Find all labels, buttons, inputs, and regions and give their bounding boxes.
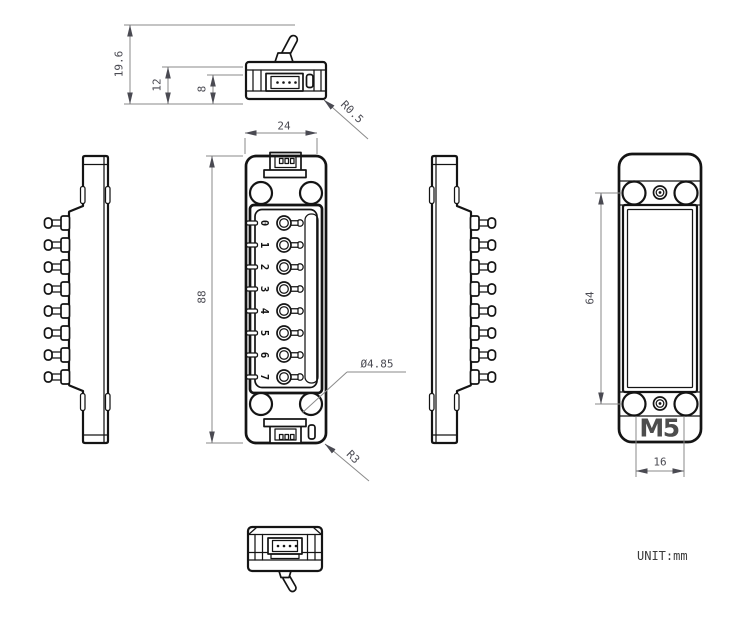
dim-label-24: 24 (277, 120, 291, 133)
tick-mark (247, 265, 258, 269)
dim-label-88: 88 (196, 290, 209, 303)
tick-mark (247, 375, 258, 379)
unit-note: UNIT:mm (637, 549, 688, 563)
screw-hole (250, 182, 272, 204)
tick-mark (247, 287, 258, 291)
dim-label-8: 8 (196, 86, 209, 93)
leader-corner-radius-main: R3 (325, 444, 369, 481)
dim-length: 88 (196, 156, 244, 443)
bottom-grove-connector (264, 419, 306, 443)
toggle-levers (45, 216, 70, 384)
dim-upper-body-height: 12 (151, 67, 244, 104)
screw-hole (675, 182, 698, 205)
connector-flange (264, 170, 306, 178)
dim-label-diameter: Ø4.85 (360, 358, 393, 371)
center-hole (654, 397, 667, 410)
toggle-levers (471, 216, 496, 384)
edge-notch (106, 394, 111, 411)
m5-logo: M5 (639, 414, 678, 443)
edge-notch (81, 394, 86, 411)
edge-notch (430, 187, 435, 204)
switch-number: 4 (258, 308, 270, 314)
screw-hole (623, 182, 646, 205)
screw-hole (300, 182, 322, 204)
edge-notch (455, 394, 460, 411)
panel-channel (305, 214, 318, 383)
technical-drawing-page: 19.6 12 8 R0.5 24 (0, 0, 750, 624)
case-outline (432, 156, 471, 443)
tick-mark (247, 353, 258, 357)
dim-label-r3: R3 (344, 448, 363, 467)
switch-number: 7 (258, 374, 270, 380)
technical-drawing-canvas: 19.6 12 8 R0.5 24 (0, 0, 750, 624)
back-view: M5 (619, 154, 701, 443)
edge-notch (106, 187, 111, 204)
tick-mark (247, 221, 258, 225)
edge-notch (455, 187, 460, 204)
top-view (246, 34, 326, 99)
leader-corner-radius-top: R0.5 (324, 98, 368, 139)
dim-label-12: 12 (151, 78, 164, 91)
switch-number: 6 (258, 352, 270, 358)
dim-label-r0-5: R0.5 (338, 98, 366, 126)
dim-base-height: 8 (196, 75, 244, 104)
dim-label-64: 64 (584, 291, 597, 305)
back-panel (623, 205, 697, 392)
edge-notch (430, 394, 435, 411)
dim-hole-pitch-vertical: 64 (584, 193, 622, 404)
toggle-lever (275, 34, 299, 62)
case-outline (69, 156, 108, 443)
edge-notch (81, 187, 86, 204)
switch-number: 3 (258, 286, 270, 292)
dim-width: 24 (245, 120, 317, 155)
bottom-view (248, 527, 322, 593)
right-side-view (430, 156, 496, 443)
switch-number: 2 (258, 264, 270, 270)
screw-hole (675, 393, 698, 416)
left-side-view (45, 156, 111, 443)
switch-number: 1 (258, 242, 270, 248)
switch-number: 5 (258, 330, 270, 336)
switch-panel (250, 205, 322, 393)
dim-label-19-6: 19.6 (113, 51, 126, 78)
tick-mark (247, 243, 258, 247)
tick-mark (247, 309, 258, 313)
switch-number: 0 (258, 220, 270, 226)
lever-base (275, 53, 293, 62)
screw-hole (623, 393, 646, 416)
toggle-lever (279, 571, 297, 593)
center-hole (654, 186, 667, 199)
connector-flange (264, 419, 306, 427)
dim-label-16: 16 (653, 456, 666, 469)
side-slot (309, 425, 316, 439)
grove-connector (266, 74, 303, 92)
tick-mark (247, 331, 258, 335)
front-view: 0 1 2 3 (246, 153, 326, 444)
screw-hole (250, 393, 272, 415)
back-panel-inner (628, 210, 693, 388)
